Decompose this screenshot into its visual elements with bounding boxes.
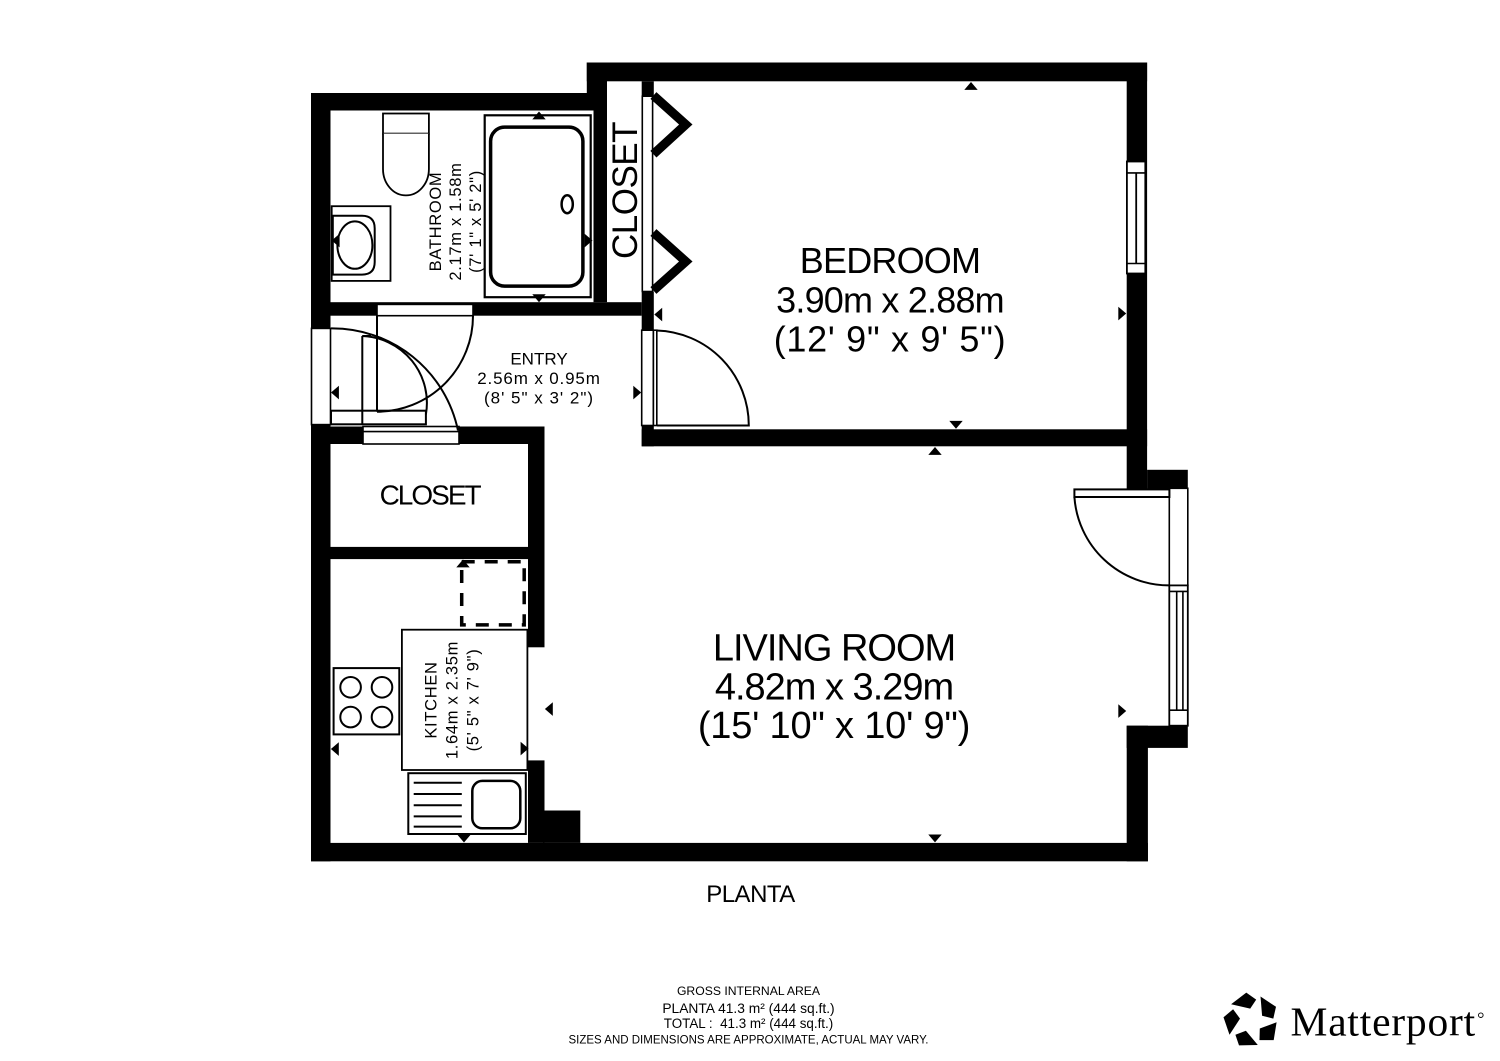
- svg-text:2.17m x 1.58m: 2.17m x 1.58m: [447, 162, 465, 280]
- svg-text:TOTAL : 41.3 m² (444 sq.ft.): TOTAL : 41.3 m² (444 sq.ft.): [664, 1016, 833, 1031]
- svg-text:4.82m x 3.29m: 4.82m x 3.29m: [715, 667, 953, 709]
- svg-text:(8' 5" x 3' 2"): (8' 5" x 3' 2"): [484, 388, 594, 407]
- svg-text:2.56m x 0.95m: 2.56m x 0.95m: [477, 369, 601, 388]
- svg-text:Matterport: Matterport: [1291, 999, 1476, 1045]
- svg-text:BATHROOM: BATHROOM: [427, 172, 445, 272]
- svg-text:KITCHEN: KITCHEN: [423, 661, 441, 738]
- svg-text:PLANTA: PLANTA: [706, 881, 795, 908]
- svg-text:LIVING ROOM: LIVING ROOM: [713, 628, 955, 670]
- svg-text:1.64m x 2.35m: 1.64m x 2.35m: [444, 641, 462, 759]
- svg-text:PLANTA 41.3 m² (444 sq.ft.): PLANTA 41.3 m² (444 sq.ft.): [662, 1001, 834, 1016]
- svg-text:3.90m x 2.88m: 3.90m x 2.88m: [776, 280, 1004, 321]
- svg-text:ENTRY: ENTRY: [510, 350, 567, 369]
- svg-text:(12' 9" x 9' 5"): (12' 9" x 9' 5"): [774, 319, 1007, 360]
- svg-text:CLOSET: CLOSET: [606, 122, 645, 259]
- svg-text:SIZES AND DIMENSIONS ARE APPRO: SIZES AND DIMENSIONS ARE APPROXIMATE, AC…: [568, 1035, 928, 1047]
- svg-text:(15' 10" x 10' 9"): (15' 10" x 10' 9"): [698, 705, 970, 747]
- svg-text:BEDROOM: BEDROOM: [800, 240, 980, 281]
- svg-text:CLOSET: CLOSET: [380, 480, 482, 511]
- svg-text:(7' 1" x 5' 2"): (7' 1" x 5' 2"): [467, 170, 485, 273]
- svg-text:GROSS INTERNAL AREA: GROSS INTERNAL AREA: [677, 984, 821, 998]
- svg-text:(5' 5" x 7' 9"): (5' 5" x 7' 9"): [465, 649, 483, 752]
